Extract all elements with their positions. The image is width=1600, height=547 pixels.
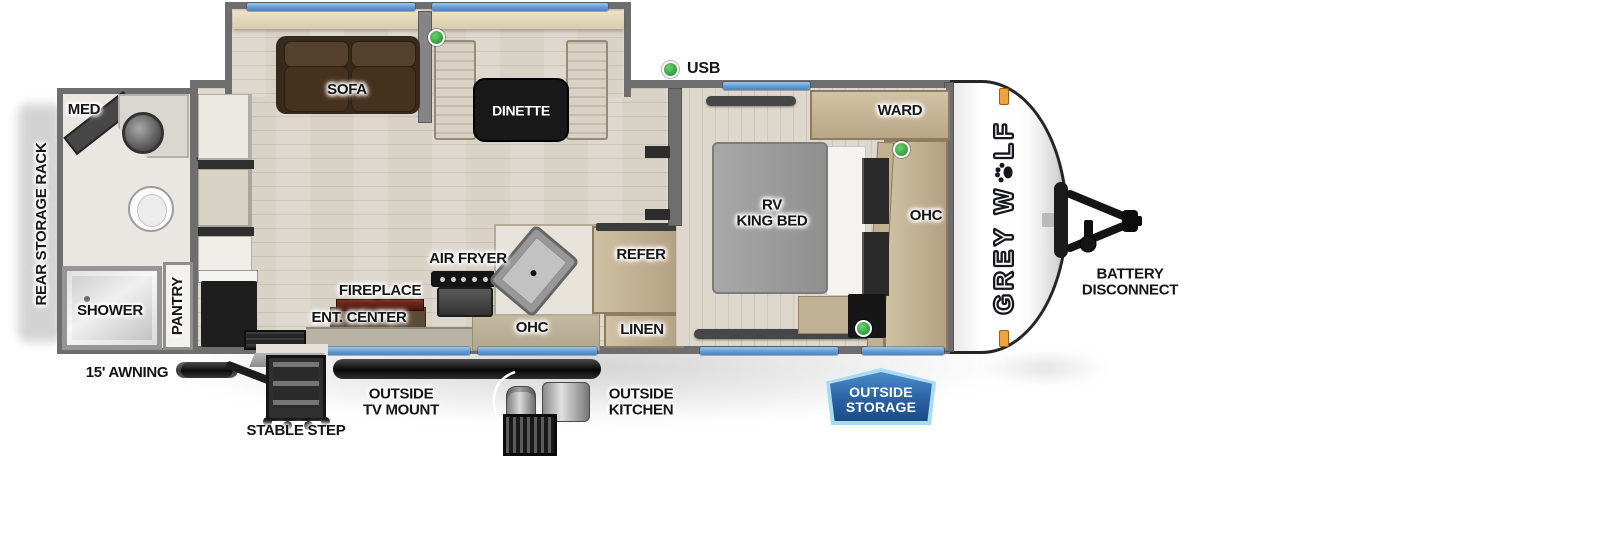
usb-legend: USB bbox=[662, 60, 720, 78]
bed-pillows bbox=[826, 146, 866, 296]
usb-dot-icon bbox=[662, 61, 679, 78]
step-wheel-icon bbox=[321, 417, 330, 426]
pantry-cabinet bbox=[163, 262, 193, 350]
sofa-back-cushion bbox=[284, 41, 349, 67]
dinette-bench bbox=[566, 40, 608, 140]
ohc-shelf-box bbox=[862, 232, 889, 296]
front-shadow bbox=[980, 350, 1110, 386]
hitch-arm bbox=[1070, 224, 1128, 248]
step-wheel-icon bbox=[283, 421, 292, 430]
ohc-shelf-box bbox=[862, 158, 889, 224]
burner-knob-icon bbox=[483, 277, 488, 282]
jack-wheel-icon bbox=[1080, 236, 1096, 252]
awning-tube bbox=[333, 359, 601, 379]
left-cabinet-lower bbox=[198, 236, 252, 274]
clearance-light-icon bbox=[999, 330, 1009, 347]
window-strip bbox=[700, 347, 838, 355]
brand-logo-prefix: GREY W bbox=[989, 185, 1020, 314]
fireplace-unit bbox=[336, 299, 424, 311]
left-cabinet-mid bbox=[198, 169, 252, 229]
bath-sink-icon bbox=[122, 112, 164, 154]
burner-knob-icon bbox=[451, 277, 456, 282]
clearance-light-icon bbox=[999, 88, 1009, 105]
window-strip bbox=[478, 347, 597, 355]
left-cabinet-upper bbox=[198, 94, 252, 162]
bedroom-window-shade bbox=[706, 96, 796, 106]
left-cabinet-sep2 bbox=[198, 227, 254, 236]
sofa-seat-cushion bbox=[284, 66, 349, 112]
usb-dot-icon bbox=[428, 29, 445, 46]
label-battery-disconnect: BATTERY DISCONNECT bbox=[1082, 266, 1178, 297]
linen-cabinet bbox=[604, 314, 684, 348]
usb-dot-icon bbox=[855, 320, 872, 337]
usb-dot-icon bbox=[893, 141, 910, 158]
step-treads bbox=[273, 362, 319, 408]
slideout-divider-wall bbox=[418, 11, 432, 123]
outside-griddle bbox=[503, 414, 557, 456]
burner-knob-icon bbox=[440, 277, 445, 282]
burner-knob-icon bbox=[461, 277, 466, 282]
step-wheel-icon bbox=[263, 417, 272, 426]
shower-drain bbox=[84, 296, 90, 302]
window-strip bbox=[723, 82, 810, 90]
wardrobe-cabinet bbox=[810, 90, 950, 140]
brand-logo-suffix: LF bbox=[989, 120, 1020, 160]
outside-storage-label: OUTSIDE STORAGE bbox=[846, 385, 916, 421]
toilet-bowl-inner bbox=[137, 194, 167, 227]
paw-print-icon bbox=[994, 162, 1014, 182]
burner-knob-icon bbox=[472, 277, 477, 282]
outside-storage-badge-face: OUTSIDE STORAGE bbox=[830, 372, 932, 421]
sofa-seat-cushion bbox=[351, 66, 416, 112]
window-strip bbox=[432, 3, 608, 11]
sofa-back-cushion bbox=[351, 41, 416, 67]
hitch-arm bbox=[1070, 194, 1128, 218]
refrigerator-cabinet bbox=[592, 226, 680, 314]
hitch-coupler-nub bbox=[1136, 216, 1142, 226]
floorplan-canvas: OUTSIDE STORAGE GREY WLF USB MED SHOWER … bbox=[0, 0, 1600, 547]
bedroom-divider-wall bbox=[668, 88, 682, 226]
bed-bench bbox=[798, 296, 850, 334]
bedroom-ohc-cabinet bbox=[884, 140, 948, 350]
air-fryer-body bbox=[437, 287, 493, 317]
step-wheel-icon bbox=[304, 421, 313, 430]
brand-logo: GREY WLF bbox=[948, 86, 1060, 348]
dinette-table bbox=[473, 78, 569, 142]
king-bed-mattress bbox=[712, 142, 828, 294]
air-fryer-range bbox=[431, 271, 497, 287]
rear-storage-rack-shape bbox=[18, 104, 62, 342]
usb-legend-label: USB bbox=[687, 60, 720, 78]
dinette-bench bbox=[434, 40, 476, 140]
shower-stall bbox=[62, 266, 162, 350]
stable-step bbox=[266, 355, 326, 421]
window-strip bbox=[247, 3, 415, 11]
refrigerator-top-edge bbox=[596, 223, 678, 231]
hitch-coupler bbox=[1122, 210, 1138, 232]
wall-shelf bbox=[645, 209, 670, 220]
left-cabinet-sep1 bbox=[198, 160, 254, 169]
window-strip bbox=[862, 347, 944, 355]
wall-shelf bbox=[645, 146, 670, 158]
window-strip bbox=[303, 347, 470, 355]
